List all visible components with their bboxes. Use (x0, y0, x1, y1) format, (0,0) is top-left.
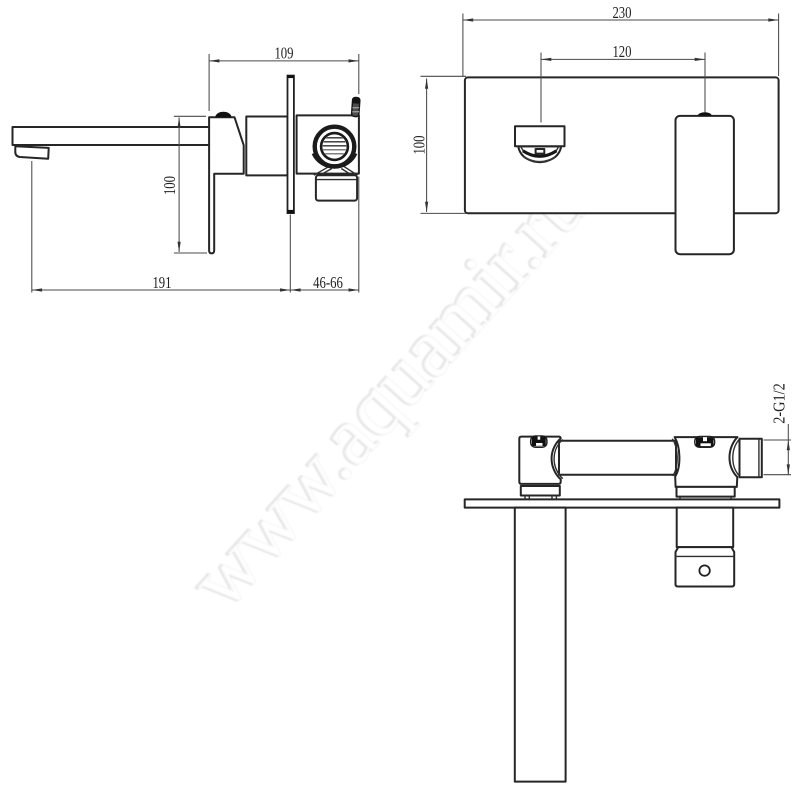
svg-text:100: 100 (411, 135, 429, 154)
svg-text:46-66: 46-66 (313, 275, 343, 293)
svg-text:100: 100 (161, 176, 179, 195)
svg-text:109: 109 (274, 45, 293, 63)
svg-text:2-G1/2: 2-G1/2 (770, 383, 788, 423)
svg-text:191: 191 (152, 275, 171, 293)
svg-text:120: 120 (612, 43, 631, 61)
svg-text:230: 230 (612, 4, 631, 22)
